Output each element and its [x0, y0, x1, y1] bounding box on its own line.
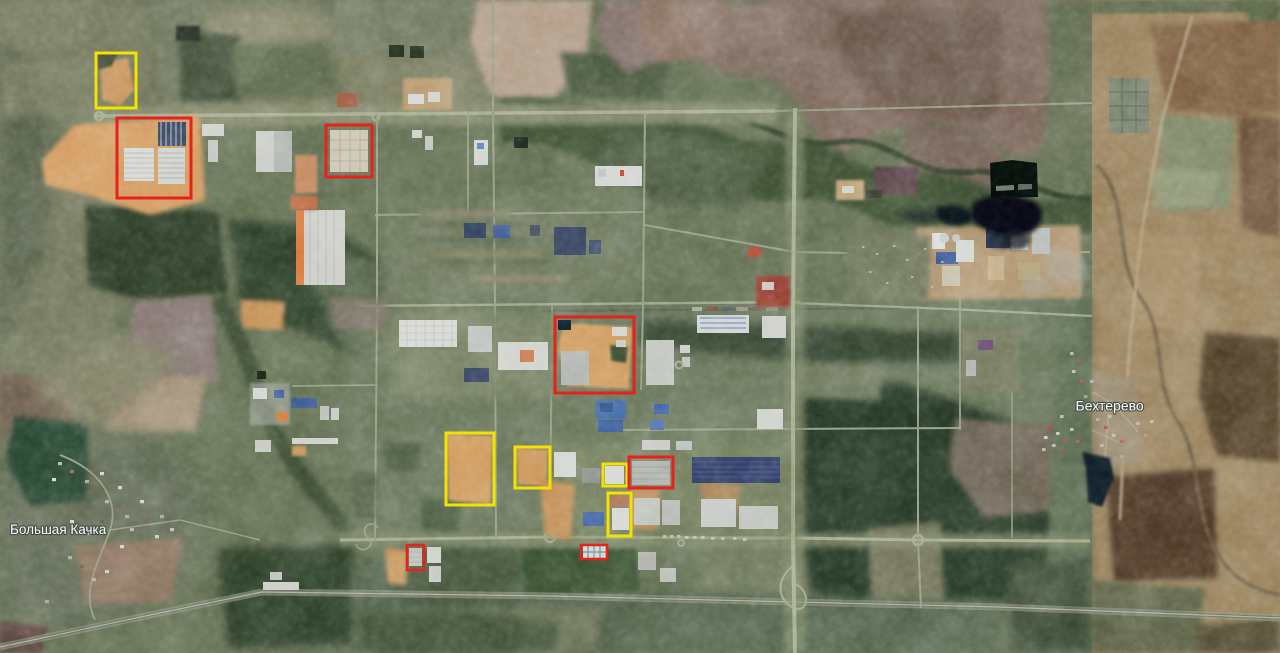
svg-text:Бехтерево: Бехтерево: [1076, 398, 1144, 414]
svg-text:Большая Качка: Большая Качка: [10, 522, 107, 537]
